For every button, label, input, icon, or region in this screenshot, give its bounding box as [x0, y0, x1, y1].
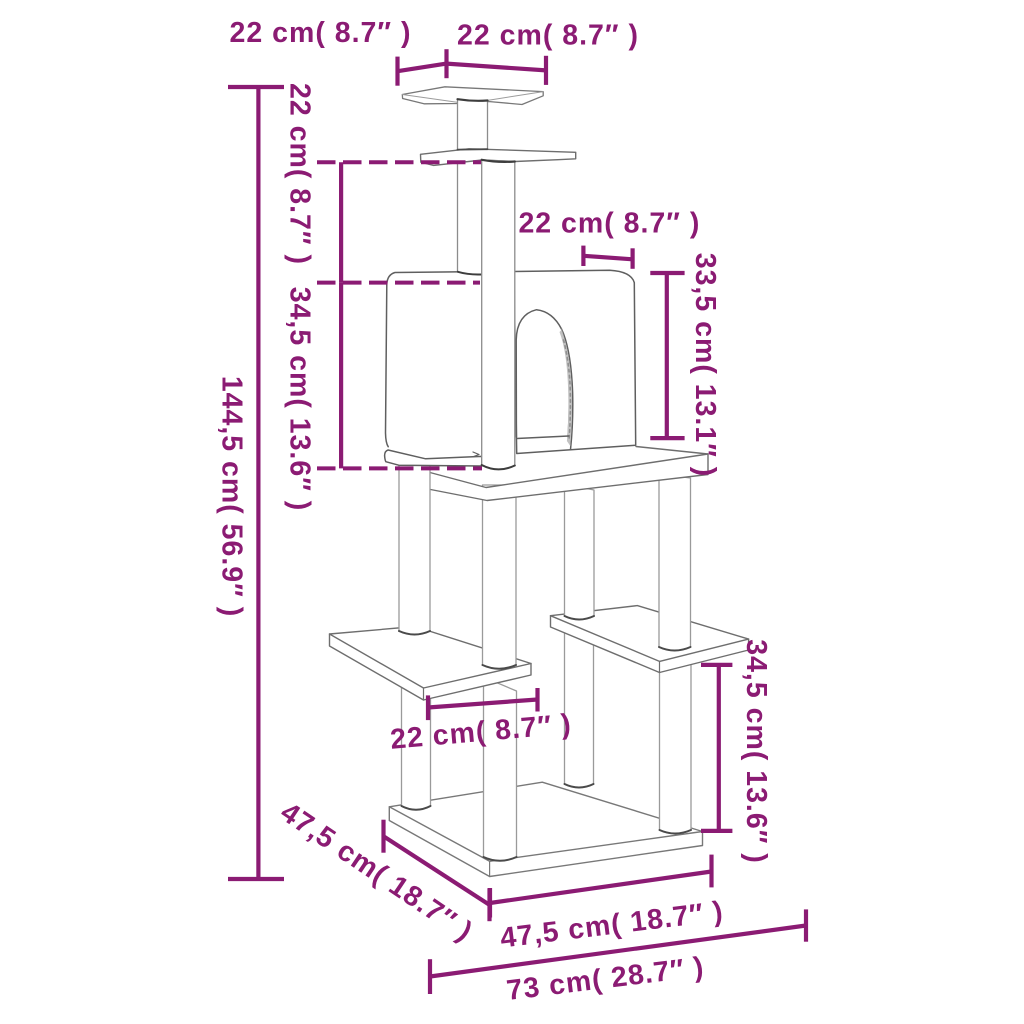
svg-text:22 cm( 8.7″ ): 22 cm( 8.7″ ) [283, 83, 315, 265]
svg-text:22 cm( 8.7″ ): 22 cm( 8.7″ ) [457, 20, 639, 52]
svg-text:34,5 cm( 13.6″ ): 34,5 cm( 13.6″ ) [740, 639, 772, 864]
svg-text:144,5 cm( 56.9″ ): 144,5 cm( 56.9″ ) [215, 376, 247, 617]
svg-text:47,5 cm( 18.7″ ): 47,5 cm( 18.7″ ) [498, 895, 725, 954]
svg-text:22 cm( 8.7″ ): 22 cm( 8.7″ ) [518, 208, 700, 240]
svg-text:22 cm( 8.7″ ): 22 cm( 8.7″ ) [230, 17, 412, 49]
svg-text:34,5 cm( 13.6″ ): 34,5 cm( 13.6″ ) [283, 287, 315, 512]
svg-text:33,5 cm( 13.1″ ): 33,5 cm( 13.1″ ) [689, 253, 721, 478]
svg-text:73 cm( 28.7″ ): 73 cm( 28.7″ ) [505, 951, 706, 1007]
